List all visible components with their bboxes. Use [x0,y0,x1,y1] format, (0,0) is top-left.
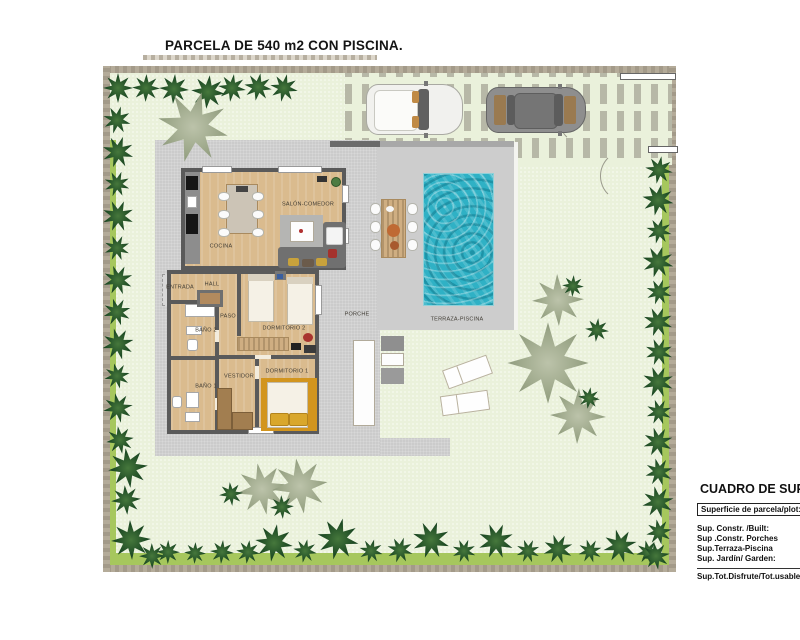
plate-icon [387,224,400,237]
chair-icon [252,192,264,201]
cushion-yellow [288,258,299,266]
dark-gray-car [486,87,586,133]
table-runner [236,186,248,192]
tv-icon [317,176,327,182]
chair-icon [407,221,418,233]
entrance-gate [620,73,676,80]
plate-icon [390,241,399,250]
summary-divider [697,568,800,569]
chair-icon [370,239,381,251]
cushion-red [328,249,337,258]
terrace-north-curb [380,141,514,147]
chair-icon [252,210,264,219]
office-chair [304,345,316,353]
pedestrian-gate [648,146,678,153]
desk [237,337,289,351]
single-bed-2 [287,277,313,325]
hob-icon [186,214,198,234]
wardrobe-h [232,412,253,430]
toilet-icon [187,339,198,351]
boundary-wall-left [103,66,110,572]
swimming-pool [423,173,494,306]
room-label-paso: PASO [220,313,236,319]
decor-dot [299,229,303,233]
terrace-north-wall [330,141,380,147]
terrace-door [342,185,349,203]
plant-icon [331,177,341,187]
toilet-icon [172,396,182,408]
terrace-edge [514,142,518,330]
wall-paso-dorm2 [237,272,241,336]
washbasin-icon [185,412,200,422]
cushion-yellow [316,258,327,266]
room-label-dormitorio-2: DORMITORIO 2 [263,325,306,331]
summary-plot-row: Superficie de parcela/plot: [697,503,800,516]
summary-row-porches: Sup .Constr. Porches [697,534,778,543]
chair-icon [218,192,230,201]
pillow-yellow [289,413,308,426]
walkway-slab [380,438,450,456]
summary-total-row: Sup.Tot.Disfrute/Tot.usable [697,572,800,581]
white-car [366,84,463,135]
sink-icon [187,196,197,208]
summary-title: CUADRO DE SUPER [700,482,800,496]
room-label-bano-2: BAÑO 2 [195,327,217,333]
desk-chair-red [303,333,313,342]
room-label-dormitorio-1: DORMITORIO 1 [266,368,309,374]
shrub-icon [103,73,133,103]
bbq-module-2 [381,368,404,384]
chair-icon [218,210,230,219]
decor-blue [277,274,283,279]
gate-swing-arc-2 [600,150,652,202]
floor-plan-page: PARCELA DE 540 m2 CON PISCINA. [0,0,800,640]
page-title: PARCELA DE 540 m2 CON PISCINA. [165,38,403,53]
room-label-hall: HALL [205,281,220,287]
pillow-yellow [270,413,289,426]
sidewalk-strip [143,55,377,60]
boundary-wall-top [103,66,676,73]
pouf [302,259,314,267]
chair-icon [370,203,381,215]
dorm2-window [315,285,322,315]
plate-icon [386,206,394,212]
summary-row-terraza: Sup.Terraza-Piscina [697,544,773,553]
wall-bano2-bano1 [167,356,219,360]
door-gap [255,366,259,379]
laptop-icon [291,343,301,350]
kitchen-window [202,166,232,173]
single-bed-1 [248,274,274,322]
sofa-pillow [326,227,343,245]
boundary-wall-bottom [103,565,676,572]
headboard [287,277,313,284]
bbq-module [381,336,404,351]
chair-icon [218,228,230,237]
room-label-vestidor: VESTIDOR [224,373,254,379]
room-label-salon-comedor: SALÓN-COMEDOR [282,201,334,207]
headboard [248,274,274,281]
chair-icon [407,239,418,251]
chair-icon [407,203,418,215]
shower-icon [186,392,199,408]
summary-row-built: Sup. Constr. /Built: [697,524,769,533]
hall-closet-top [200,293,220,304]
area-label-porche: PORCHE [345,311,370,317]
oven-icon [186,176,198,190]
area-label-terraza-piscina: TERRAZA-PISCINA [431,316,484,322]
room-label-entrada: ENTRADA [166,284,194,290]
porch-bench [353,340,375,426]
room-label-cocina: COCINA [210,243,233,249]
chair-icon [370,221,381,233]
wardrobe-v [217,388,232,430]
living-window [278,166,322,173]
room-label-bano-1: BAÑO 1 [195,383,217,389]
bbq-module-white [381,353,404,366]
summary-row-jardin: Sup. Jardín/ Garden: [697,554,776,563]
chair-icon [252,228,264,237]
